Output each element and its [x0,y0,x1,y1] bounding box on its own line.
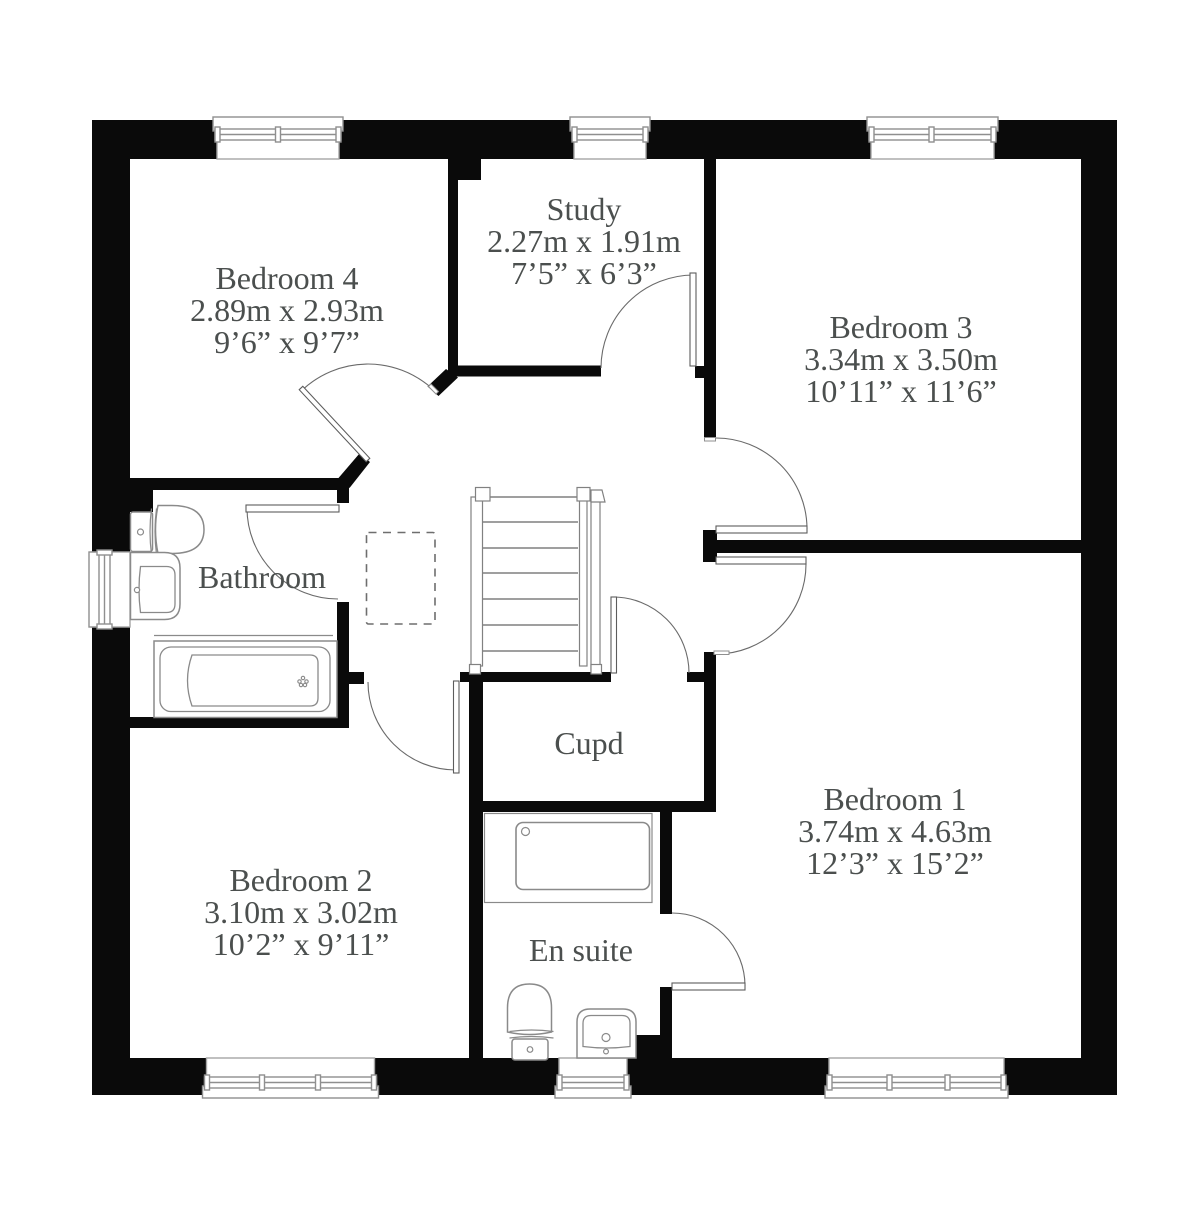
svg-text:En suite: En suite [529,932,633,968]
svg-text:Bedroom 1: Bedroom 1 [823,781,966,817]
svg-text:Bedroom 4: Bedroom 4 [215,260,358,296]
svg-text:10’2” x 9’11”: 10’2” x 9’11” [213,926,390,962]
svg-text:2.89m x 2.93m: 2.89m x 2.93m [190,292,384,328]
svg-text:3.74m x 4.63m: 3.74m x 4.63m [798,813,992,849]
svg-text:3.10m x 3.02m: 3.10m x 3.02m [204,894,398,930]
svg-text:3.34m x 3.50m: 3.34m x 3.50m [804,341,998,377]
svg-text:9’6” x 9’7”: 9’6” x 9’7” [214,324,360,360]
svg-text:Study: Study [547,191,622,227]
svg-text:Cupd: Cupd [554,725,623,761]
svg-text:10’11” x 11’6”: 10’11” x 11’6” [805,373,996,409]
svg-text:Bedroom 3: Bedroom 3 [829,309,972,345]
svg-text:12’3” x 15’2”: 12’3” x 15’2” [806,845,984,881]
svg-text:Bathroom: Bathroom [198,559,326,595]
svg-text:Bedroom 2: Bedroom 2 [229,862,372,898]
svg-text:7’5” x 6’3”: 7’5” x 6’3” [511,255,657,291]
svg-text:2.27m x 1.91m: 2.27m x 1.91m [487,223,681,259]
